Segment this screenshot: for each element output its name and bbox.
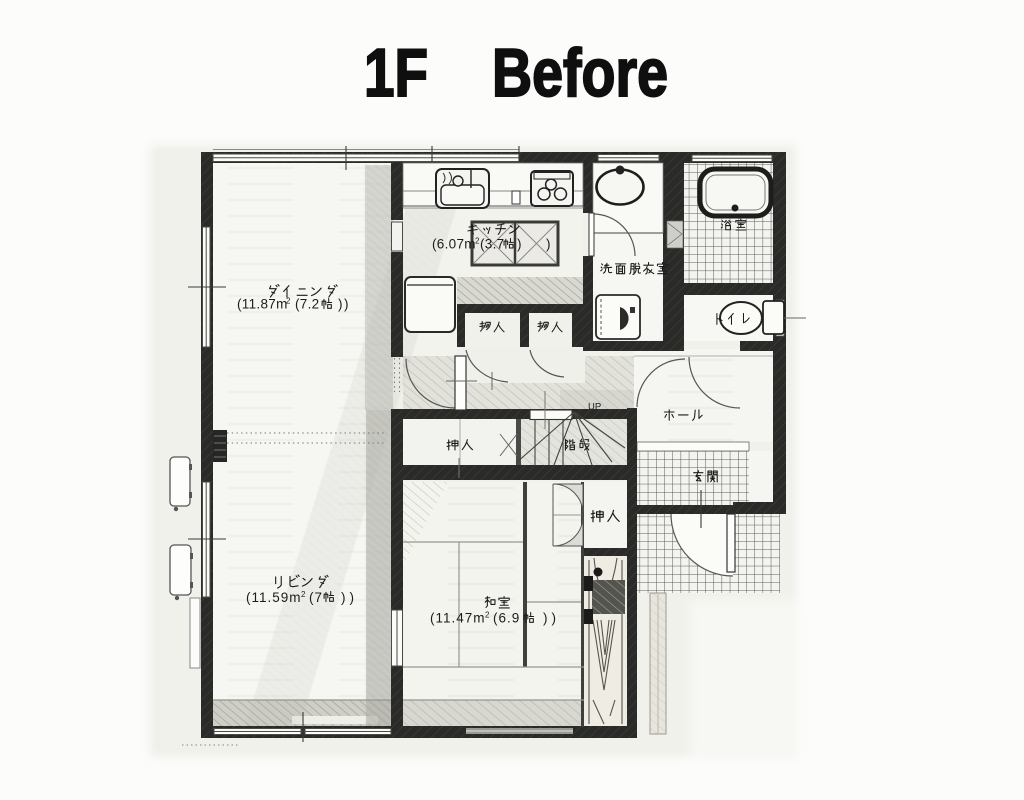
svg-text:2: 2 <box>286 297 291 306</box>
svg-text:(11.59m: (11.59m <box>246 590 302 605</box>
svg-text:): ) <box>517 237 522 252</box>
svg-text:(3.7: (3.7 <box>480 237 504 252</box>
svg-text:)): )) <box>341 590 358 605</box>
svg-text:UP: UP <box>588 402 601 413</box>
svg-text:2: 2 <box>301 590 306 599</box>
svg-text:(11.47m: (11.47m <box>430 611 486 626</box>
svg-text:(6.07m: (6.07m <box>432 237 476 252</box>
svg-text:(11.87m: (11.87m <box>237 297 288 312</box>
svg-text:Before: Before <box>492 35 668 111</box>
svg-text:(6.9: (6.9 <box>493 611 520 626</box>
svg-text:1F: 1F <box>364 35 428 111</box>
svg-text:(7: (7 <box>309 590 323 605</box>
svg-text:2: 2 <box>485 611 490 620</box>
svg-text:)): )) <box>543 611 560 626</box>
svg-text:): ) <box>546 237 551 252</box>
svg-text:)): )) <box>338 297 350 312</box>
svg-text:(7.2: (7.2 <box>295 297 319 312</box>
